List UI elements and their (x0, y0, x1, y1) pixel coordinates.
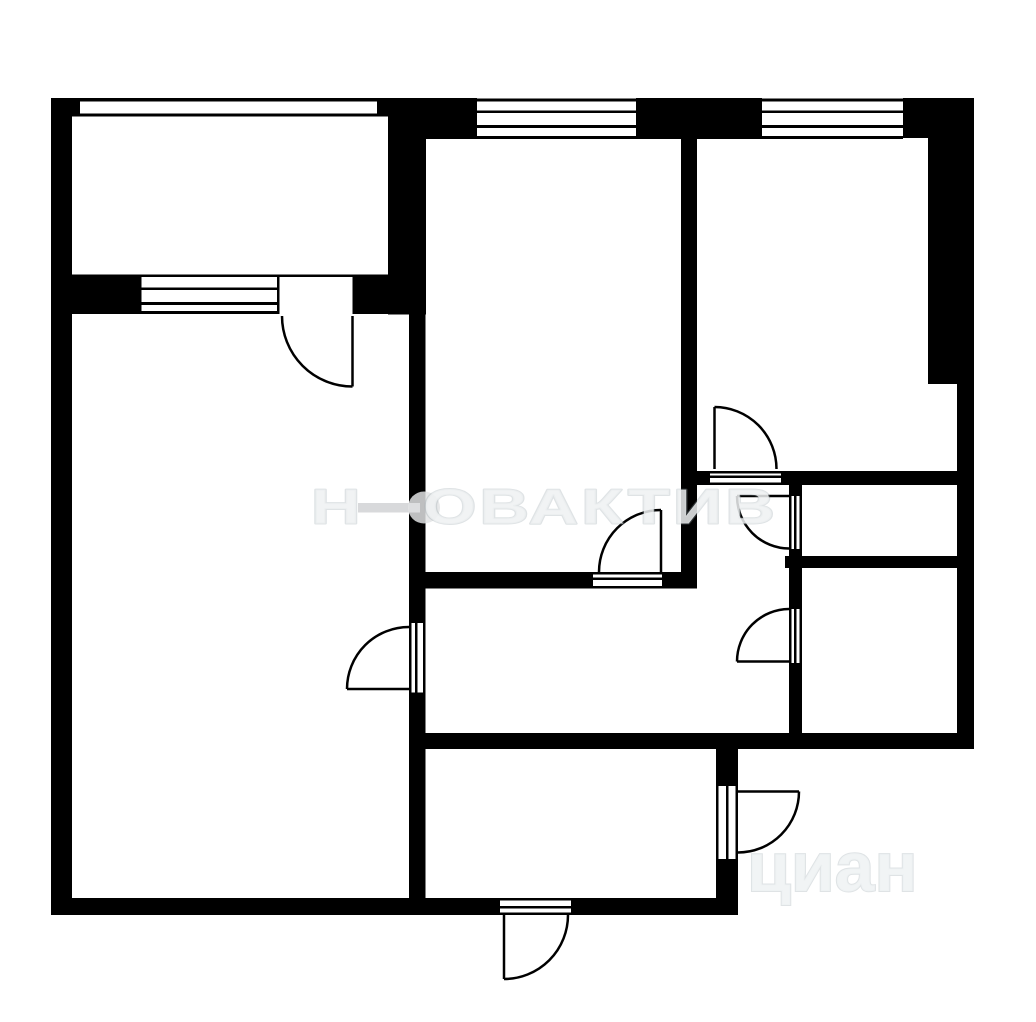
svg-text:Н: Н (311, 479, 361, 534)
svg-text:ОВАКТИВ: ОВАКТИВ (423, 479, 778, 534)
svg-text:циан: циан (747, 828, 918, 906)
